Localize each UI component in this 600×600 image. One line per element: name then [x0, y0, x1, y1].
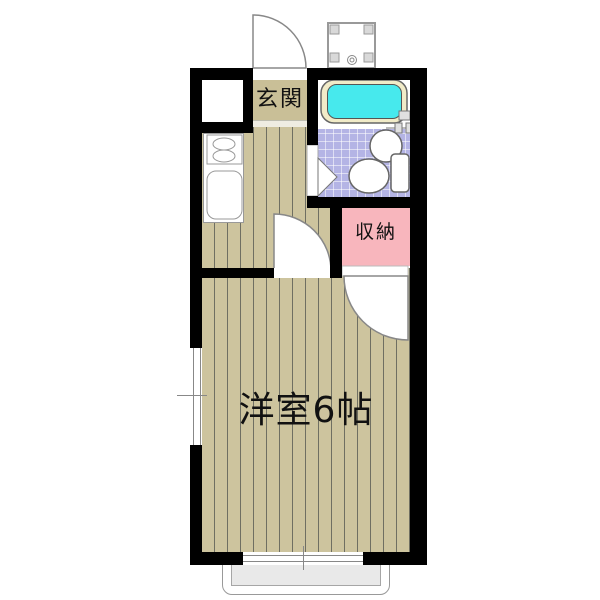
- wall-room-top: [190, 268, 274, 278]
- bathroom-door-arrow-icon: [318, 158, 337, 196]
- wall-top-right: [307, 68, 427, 80]
- main-room-label: 洋室6帖: [202, 393, 410, 429]
- room-door-opening: [274, 268, 331, 278]
- bathroom-door: [307, 145, 318, 196]
- washing-machine-pan-icon: [328, 23, 375, 68]
- wall-right: [410, 68, 427, 565]
- wall-left-lower: [190, 445, 202, 565]
- kitchen-sink-icon: [207, 171, 242, 219]
- wall-shoebox-bottom: [202, 122, 253, 133]
- wall-storage-left: [330, 208, 342, 278]
- room-door-swing: [274, 214, 331, 271]
- window-balcony-tick: [303, 546, 304, 570]
- stove-icon: [207, 135, 242, 164]
- closet-door-swing: [344, 276, 408, 340]
- wall-bathroom-bottom: [307, 197, 410, 208]
- floorplan: 玄関 収納 洋室6帖: [0, 0, 600, 600]
- entrance-label: 玄関: [250, 89, 310, 111]
- storage-label: 収納: [342, 223, 410, 242]
- wall-left-upper: [190, 68, 202, 348]
- wall-bottom-left: [190, 552, 243, 565]
- closet-door-leaf: [342, 266, 408, 276]
- wall-bottom-right: [363, 552, 427, 565]
- bathtub-icon: [321, 80, 407, 123]
- window-left-panes: [193, 348, 201, 445]
- entrance-door-swing: [253, 15, 306, 68]
